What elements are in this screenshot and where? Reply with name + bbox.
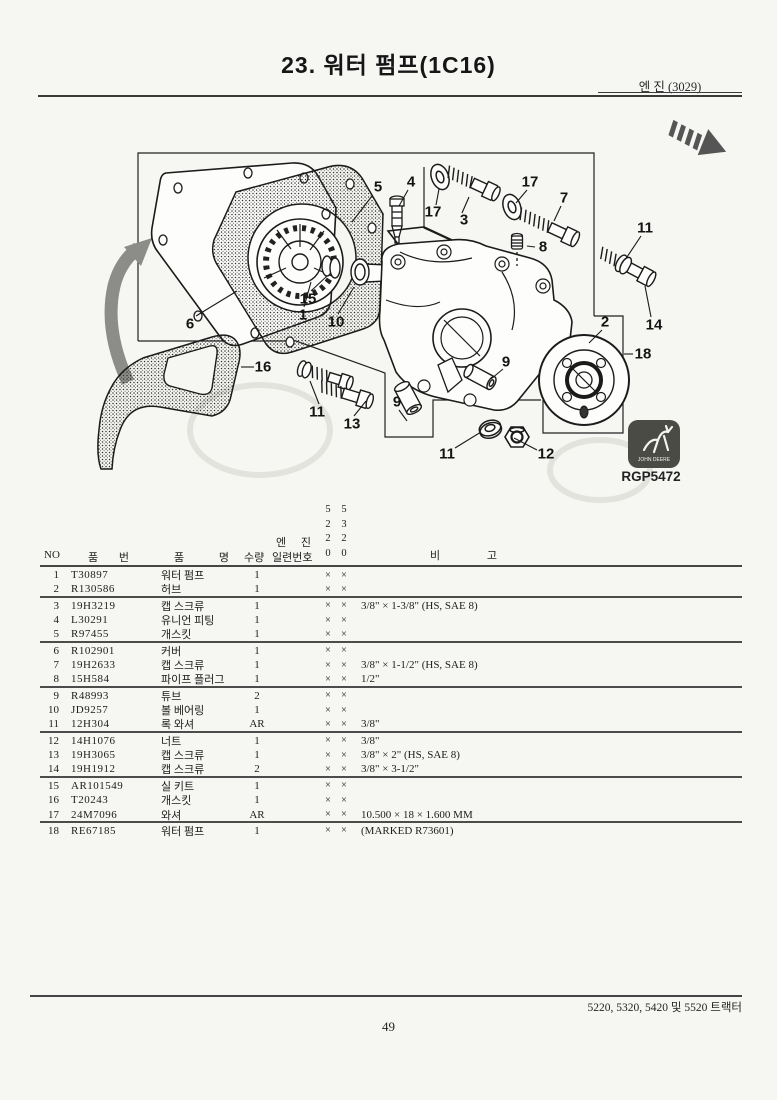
- cell-mark-5320: ×: [336, 809, 352, 820]
- cell-part-name: 허브: [160, 581, 244, 597]
- table-row-3: 319H3219캡 스크류1××3/8" × 1-3/8" (HS, SAE 8…: [40, 598, 742, 612]
- table-row-18: 18RE67185워터 펌프1××(MARKED R73601): [40, 823, 742, 837]
- part-pulley-2: [539, 335, 629, 425]
- cell-part-name: 와셔: [160, 807, 244, 823]
- cell-no: 15: [40, 780, 64, 792]
- part-washer-11c: [477, 417, 503, 440]
- cell-mark-5320: ×: [336, 705, 352, 716]
- cell-part-number: 19H3065: [64, 749, 160, 761]
- cell-mark-5220: ×: [320, 825, 336, 836]
- cell-mark-5320: ×: [336, 825, 352, 836]
- cell-mark-5220: ×: [320, 719, 336, 730]
- cell-mark-5220: ×: [320, 570, 336, 581]
- cell-no: 8: [40, 673, 64, 685]
- col-header-serial: 일련번호: [272, 549, 312, 565]
- cell-no: 17: [40, 809, 64, 821]
- cell-part-number: T30897: [64, 569, 160, 581]
- cell-mark-5320: ×: [336, 674, 352, 685]
- cell-mark-5320: ×: [336, 615, 352, 626]
- cell-part-number: 19H3219: [64, 600, 160, 612]
- serial-col-1: 5220: [321, 503, 335, 561]
- cell-qty: 1: [244, 794, 270, 806]
- cell-mark-5320: ×: [336, 764, 352, 775]
- cell-qty: 2: [244, 763, 270, 775]
- cell-part-name: 캡 스크류: [160, 761, 244, 777]
- cell-qty: 1: [244, 614, 270, 626]
- cell-mark-5320: ×: [336, 780, 352, 791]
- part-bolt-7: [516, 206, 582, 248]
- cell-part-name: 워터 펌프: [160, 823, 244, 839]
- cell-mark-5320: ×: [336, 660, 352, 671]
- cell-mark-5320: ×: [336, 795, 352, 806]
- table-row-14: 1419H1912캡 스크류2××3/8" × 3-1/2": [40, 761, 742, 777]
- cell-mark-5220: ×: [320, 615, 336, 626]
- cell-qty: 1: [244, 659, 270, 671]
- cell-qty: 1: [244, 825, 270, 837]
- cell-mark-5320: ×: [336, 719, 352, 730]
- table-row-12: 1214H1076너트1××3/8": [40, 733, 742, 747]
- cell-mark-5320: ×: [336, 735, 352, 746]
- cell-no: 12: [40, 735, 64, 747]
- cell-part-number: AR101549: [64, 780, 160, 792]
- cell-mark-5220: ×: [320, 735, 336, 746]
- cell-part-number: R97455: [64, 628, 160, 640]
- part-bolt-3: [444, 164, 502, 203]
- table-row-4: 4L30291유니언 피팅1××: [40, 612, 742, 626]
- table-row-15: 15AR101549실 키트1××: [40, 778, 742, 792]
- cell-qty: 1: [244, 600, 270, 612]
- col-header-no: NO: [44, 549, 60, 561]
- part-bolt-11b: [296, 360, 355, 392]
- cell-part-name: 파이프 플러그: [160, 671, 244, 687]
- cell-remark: 3/8": [352, 718, 742, 730]
- cell-mark-5220: ×: [320, 674, 336, 685]
- cell-part-number: R48993: [64, 690, 160, 702]
- cell-no: 2: [40, 583, 64, 595]
- cell-no: 10: [40, 704, 64, 716]
- cell-part-number: R102901: [64, 645, 160, 657]
- cell-qty: 1: [244, 645, 270, 657]
- cell-remark: 1/2": [352, 673, 742, 685]
- footer-rule: [30, 995, 742, 997]
- cell-remark: (MARKED R73601): [352, 825, 742, 837]
- page-turn-arrow-icon: [665, 118, 731, 163]
- cell-remark: 3/8" × 1-3/8" (HS, SAE 8): [352, 600, 742, 612]
- cell-part-name: 개스킷: [160, 626, 244, 642]
- cell-part-number: T20243: [64, 794, 160, 806]
- cell-no: 11: [40, 718, 64, 730]
- cell-mark-5320: ×: [336, 584, 352, 595]
- cell-mark-5320: ×: [336, 600, 352, 611]
- col-header-engine: 엔 진: [276, 534, 317, 550]
- table-row-17: 1724M7096와셔AR××10.500 × 18 × 1.600 MM: [40, 807, 742, 823]
- serial-col-2: 5320: [337, 503, 351, 561]
- table-row-2: 2R130586허브1××: [40, 581, 742, 597]
- cell-mark-5320: ×: [336, 750, 352, 761]
- parts-table-header: NO 품 번 품 명 수량 엔 진 일련번호 5220 5320 비 고: [40, 503, 742, 567]
- table-row-11: 1112H304록 와셔AR××3/8": [40, 716, 742, 732]
- cell-part-number: 24M7096: [64, 809, 160, 821]
- cell-no: 14: [40, 763, 64, 775]
- table-row-9: 9R48993튜브2××: [40, 688, 742, 702]
- cell-qty: 1: [244, 628, 270, 640]
- cell-mark-5220: ×: [320, 795, 336, 806]
- cell-part-number: RE67185: [64, 825, 160, 837]
- cell-mark-5320: ×: [336, 570, 352, 581]
- catalog-page: 23. 워터 펌프(1C16) 엔 진 (3029): [0, 0, 777, 1100]
- col-header-part-number: 품 번: [88, 549, 138, 565]
- cell-no: 18: [40, 825, 64, 837]
- cell-part-number: JD9257: [64, 704, 160, 716]
- cell-no: 1: [40, 569, 64, 581]
- cell-part-name: 록 와셔: [160, 716, 244, 732]
- cell-mark-5320: ×: [336, 690, 352, 701]
- cell-mark-5220: ×: [320, 629, 336, 640]
- cell-part-number: 14H1076: [64, 735, 160, 747]
- cell-mark-5320: ×: [336, 629, 352, 640]
- table-row-5: 5R97455개스킷1××: [40, 626, 742, 642]
- cell-mark-5220: ×: [320, 600, 336, 611]
- table-row-7: 719H2633캡 스크류1××3/8" × 1-1/2" (HS, SAE 8…: [40, 657, 742, 671]
- col-header-part-name: 품 명: [174, 549, 245, 565]
- table-row-13: 1319H3065캡 스크류1××3/8" × 2" (HS, SAE 8): [40, 747, 742, 761]
- cell-no: 3: [40, 600, 64, 612]
- john-deere-logo: JOHN DEERE: [628, 420, 680, 468]
- cell-mark-5220: ×: [320, 764, 336, 775]
- cell-no: 6: [40, 645, 64, 657]
- table-row-1: 1T30897워터 펌프1××: [40, 567, 742, 581]
- cell-mark-5220: ×: [320, 584, 336, 595]
- cell-no: 4: [40, 614, 64, 626]
- cell-mark-5320: ×: [336, 645, 352, 656]
- cell-mark-5220: ×: [320, 809, 336, 820]
- cell-qty: AR: [244, 809, 270, 821]
- cell-mark-5220: ×: [320, 690, 336, 701]
- john-deere-logo-text: JOHN DEERE: [638, 457, 671, 463]
- parts-table: NO 품 번 품 명 수량 엔 진 일련번호 5220 5320 비 고 1T3…: [40, 503, 742, 837]
- footer-models: 5220, 5320, 5420 및 5520 트랙터: [442, 999, 742, 1015]
- cell-remark: 3/8" × 1-1/2" (HS, SAE 8): [352, 659, 742, 671]
- cell-qty: 1: [244, 749, 270, 761]
- cell-part-number: 15H584: [64, 673, 160, 685]
- cell-qty: 1: [244, 583, 270, 595]
- col-header-qty: 수량: [244, 549, 264, 565]
- cell-no: 13: [40, 749, 64, 761]
- cell-part-number: 19H1912: [64, 763, 160, 775]
- table-row-10: 10JD9257볼 베어링1××: [40, 702, 742, 716]
- figure-code: RGP5472: [606, 469, 696, 484]
- page-number: 49: [0, 1019, 777, 1035]
- cell-remark: 3/8" × 3-1/2": [352, 763, 742, 775]
- cell-qty: 1: [244, 704, 270, 716]
- cell-mark-5220: ×: [320, 660, 336, 671]
- table-row-16: 16T20243개스킷1××: [40, 792, 742, 806]
- cell-part-number: 12H304: [64, 718, 160, 730]
- table-row-8: 815H584파이프 플러그1××1/2": [40, 671, 742, 687]
- cell-no: 9: [40, 690, 64, 702]
- cell-qty: 1: [244, 569, 270, 581]
- cell-qty: 1: [244, 780, 270, 792]
- cell-remark: 3/8" × 2" (HS, SAE 8): [352, 749, 742, 761]
- cell-remark: 3/8": [352, 735, 742, 747]
- part-seal-15: [322, 256, 340, 278]
- table-row-6: 6R102901커버1××: [40, 643, 742, 657]
- cell-qty: AR: [244, 718, 270, 730]
- cell-mark-5220: ×: [320, 780, 336, 791]
- cell-mark-5220: ×: [320, 750, 336, 761]
- cell-part-number: L30291: [64, 614, 160, 626]
- cell-mark-5220: ×: [320, 645, 336, 656]
- cell-mark-5220: ×: [320, 705, 336, 716]
- col-header-remarks: 비 고: [430, 547, 519, 563]
- cell-qty: 1: [244, 673, 270, 685]
- part-bolt-14: [596, 244, 658, 289]
- cell-qty: 1: [244, 735, 270, 747]
- cell-no: 16: [40, 794, 64, 806]
- parts-table-body: 1T30897워터 펌프1××2R130586허브1××319H3219캡 스크…: [40, 567, 742, 837]
- cell-remark: 10.500 × 18 × 1.600 MM: [352, 809, 742, 821]
- cell-no: 7: [40, 659, 64, 671]
- cell-part-number: 19H2633: [64, 659, 160, 671]
- cell-part-number: R130586: [64, 583, 160, 595]
- cell-no: 5: [40, 628, 64, 640]
- cell-qty: 2: [244, 690, 270, 702]
